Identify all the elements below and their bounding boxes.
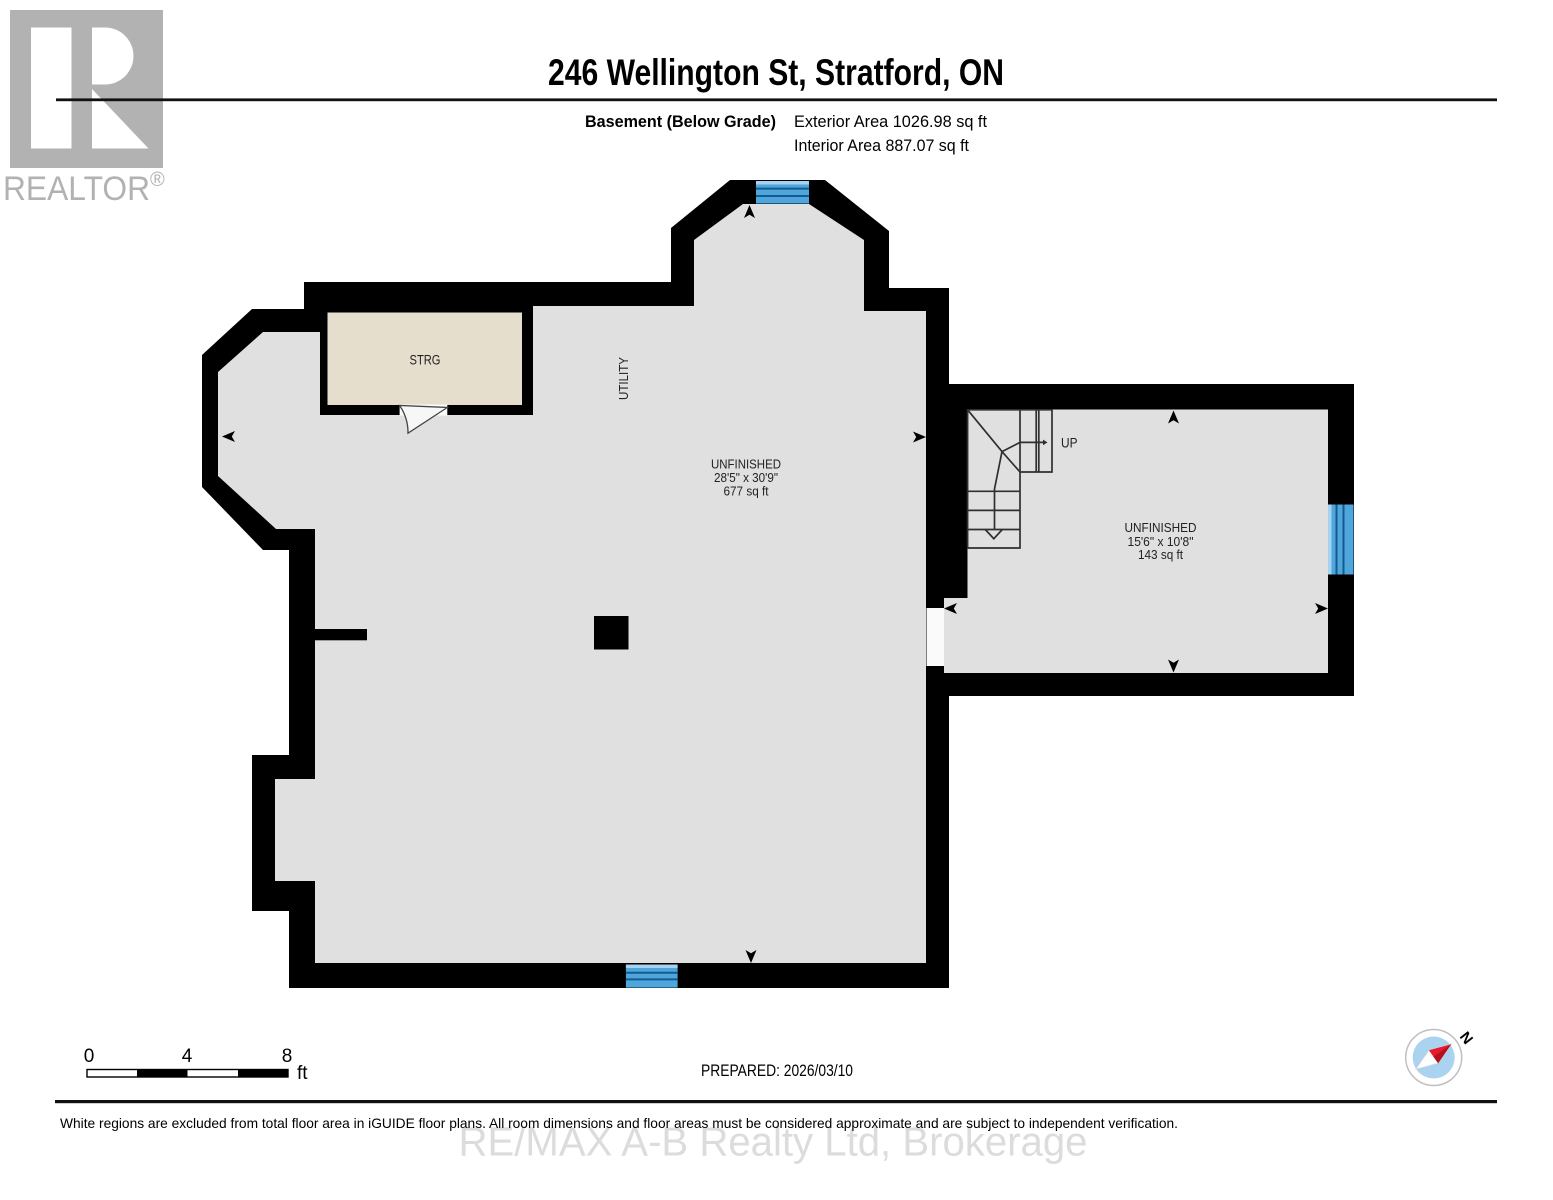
svg-text:143 sq ft: 143 sq ft <box>1138 548 1183 562</box>
svg-text:®: ® <box>150 169 165 191</box>
svg-text:Basement (Below Grade): Basement (Below Grade) <box>585 112 776 131</box>
svg-text:246 Wellington St, Stratford,: 246 Wellington St, Stratford, ON <box>548 52 1004 93</box>
svg-text:PREPARED: 2026/03/10: PREPARED: 2026/03/10 <box>701 1061 853 1080</box>
svg-text:15'6" x 10'8": 15'6" x 10'8" <box>1128 535 1194 549</box>
svg-text:677 sq ft: 677 sq ft <box>724 485 769 499</box>
svg-text:UNFINISHED: UNFINISHED <box>711 458 781 472</box>
svg-text:4: 4 <box>182 1046 193 1067</box>
svg-text:White regions are excluded fro: White regions are excluded from total fl… <box>60 1116 1178 1131</box>
svg-text:Interior Area 887.07 sq ft: Interior Area 887.07 sq ft <box>794 136 969 155</box>
svg-text:0: 0 <box>84 1046 95 1067</box>
svg-text:Exterior Area 1026.98 sq ft: Exterior Area 1026.98 sq ft <box>794 112 987 131</box>
svg-text:STRG: STRG <box>410 353 441 368</box>
svg-text:ft: ft <box>297 1063 308 1084</box>
svg-text:28'5" x 30'9": 28'5" x 30'9" <box>714 471 778 485</box>
svg-text:UP: UP <box>1061 435 1078 450</box>
svg-text:8: 8 <box>282 1046 293 1067</box>
svg-text:UNFINISHED: UNFINISHED <box>1125 521 1197 535</box>
svg-text:REALTOR: REALTOR <box>3 170 150 208</box>
svg-text:UTILITY: UTILITY <box>617 356 631 400</box>
